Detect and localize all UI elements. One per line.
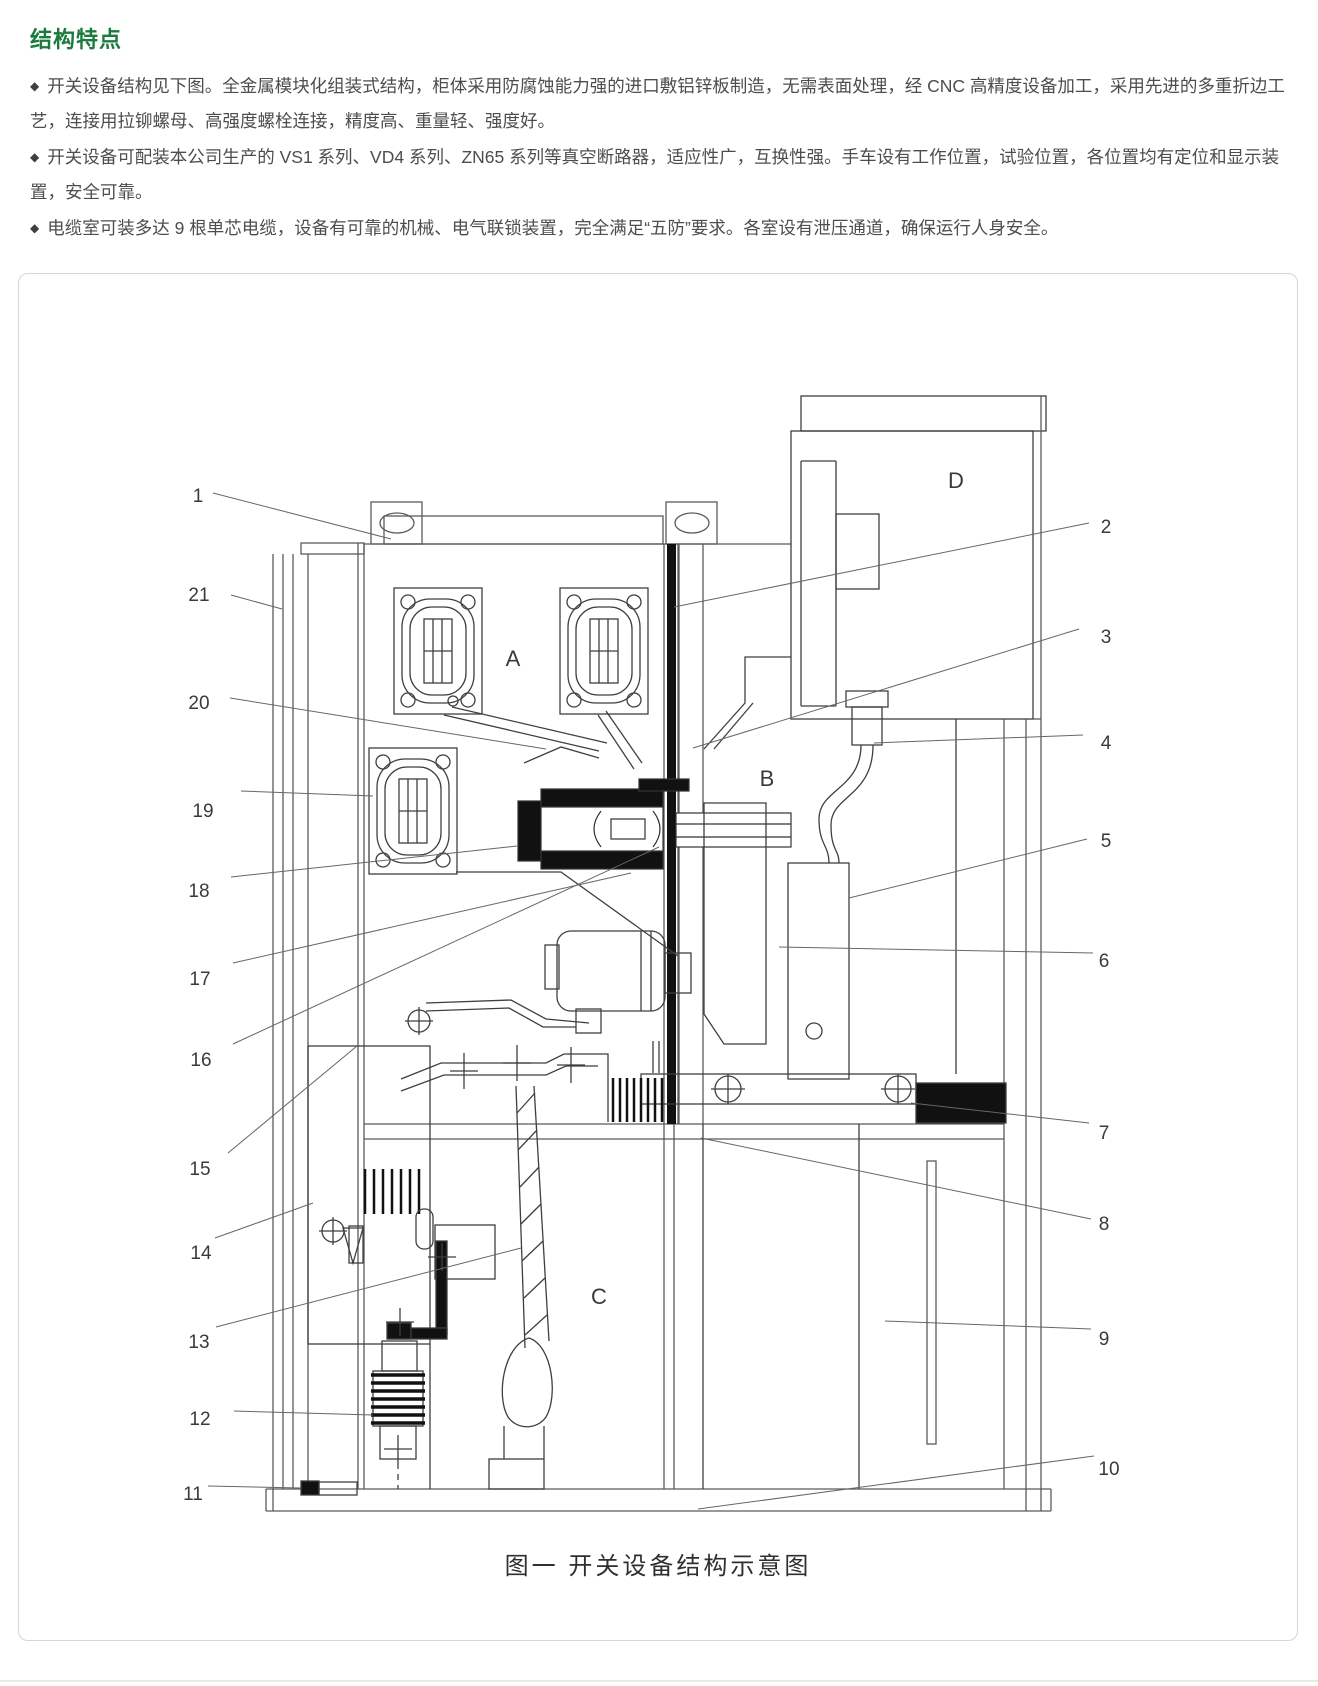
feature-text: 开关设备可配装本公司生产的 VS1 系列、VD4 系列、ZN65 系列等真空断路… bbox=[30, 147, 1279, 202]
feature-text: 开关设备结构见下图。全金属模块化组装式结构，柜体采用防腐蚀能力强的进口敷铝锌板制… bbox=[30, 76, 1285, 131]
callout-label-4: 4 bbox=[1101, 733, 1112, 754]
callout-label-2: 2 bbox=[1101, 517, 1112, 538]
page-title: 结构特点 bbox=[30, 22, 122, 54]
cable-compartment-c bbox=[301, 1046, 859, 1495]
compartment-label-d: D bbox=[948, 468, 964, 493]
compartment-label-a: A bbox=[506, 646, 521, 671]
callout-label-15: 15 bbox=[189, 1159, 210, 1180]
callout-label-11: 11 bbox=[183, 1484, 203, 1505]
callout-label-21: 21 bbox=[188, 585, 209, 606]
feature-item: ◆开关设备可配装本公司生产的 VS1 系列、VD4 系列、ZN65 系列等真空断… bbox=[30, 141, 1292, 209]
callout-label-13: 13 bbox=[188, 1332, 209, 1353]
contact-assembly bbox=[518, 779, 791, 869]
callout-label-16: 16 bbox=[190, 1050, 211, 1071]
switchgear-structure-diagram: 1 21 20 19 18 17 16 15 14 13 12 11 2 3 4… bbox=[19, 274, 1299, 1642]
diamond-bullet-icon: ◆ bbox=[30, 221, 39, 235]
callout-label-5: 5 bbox=[1101, 831, 1112, 852]
callout-label-20: 20 bbox=[188, 693, 209, 714]
callout-label-8: 8 bbox=[1099, 1214, 1110, 1235]
main-busbar bbox=[667, 544, 676, 1124]
callout-label-17: 17 bbox=[189, 969, 210, 990]
feature-item: ◆电缆室可装多达 9 根单芯电缆，设备有可靠的机械、电气联锁装置，完全满足“五防… bbox=[30, 212, 1292, 247]
compartment-labels: A B C D bbox=[506, 468, 964, 1309]
callout-label-18: 18 bbox=[188, 881, 209, 902]
callout-label-7: 7 bbox=[1099, 1123, 1110, 1144]
diamond-bullet-icon: ◆ bbox=[30, 150, 39, 164]
callout-label-6: 6 bbox=[1099, 951, 1110, 972]
feature-list: ◆开关设备结构见下图。全金属模块化组装式结构，柜体采用防腐蚀能力强的进口敷铝锌板… bbox=[30, 70, 1292, 250]
callout-label-1: 1 bbox=[193, 486, 204, 507]
figure-caption: 图一 开关设备结构示意图 bbox=[19, 1546, 1297, 1581]
cabinet-frame bbox=[266, 502, 1051, 1511]
breaker-compartment-b bbox=[704, 657, 956, 1079]
callout-label-9: 9 bbox=[1099, 1329, 1110, 1350]
compartment-label-c: C bbox=[591, 1284, 607, 1309]
feature-item: ◆开关设备结构见下图。全金属模块化组装式结构，柜体采用防腐蚀能力强的进口敷铝锌板… bbox=[30, 70, 1292, 138]
callout-label-19: 19 bbox=[192, 801, 213, 822]
right-wall-panels bbox=[927, 396, 1041, 1511]
callout-label-10: 10 bbox=[1098, 1459, 1119, 1480]
section-divider bbox=[0, 1680, 1318, 1682]
feature-text: 电缆室可装多达 9 根单芯电缆，设备有可靠的机械、电气联锁装置，完全满足“五防”… bbox=[47, 218, 1058, 238]
figure-frame: 1 21 20 19 18 17 16 15 14 13 12 11 2 3 4… bbox=[18, 273, 1298, 1641]
callout-label-12: 12 bbox=[189, 1409, 210, 1430]
compartment-label-b: B bbox=[760, 766, 775, 791]
page: { "page": { "title": "结构特点", "accent_col… bbox=[0, 0, 1318, 1686]
callout-label-14: 14 bbox=[190, 1243, 212, 1264]
busbar-compartment-a bbox=[369, 588, 678, 956]
callout-label-3: 3 bbox=[1101, 627, 1112, 648]
diamond-bullet-icon: ◆ bbox=[30, 79, 39, 93]
